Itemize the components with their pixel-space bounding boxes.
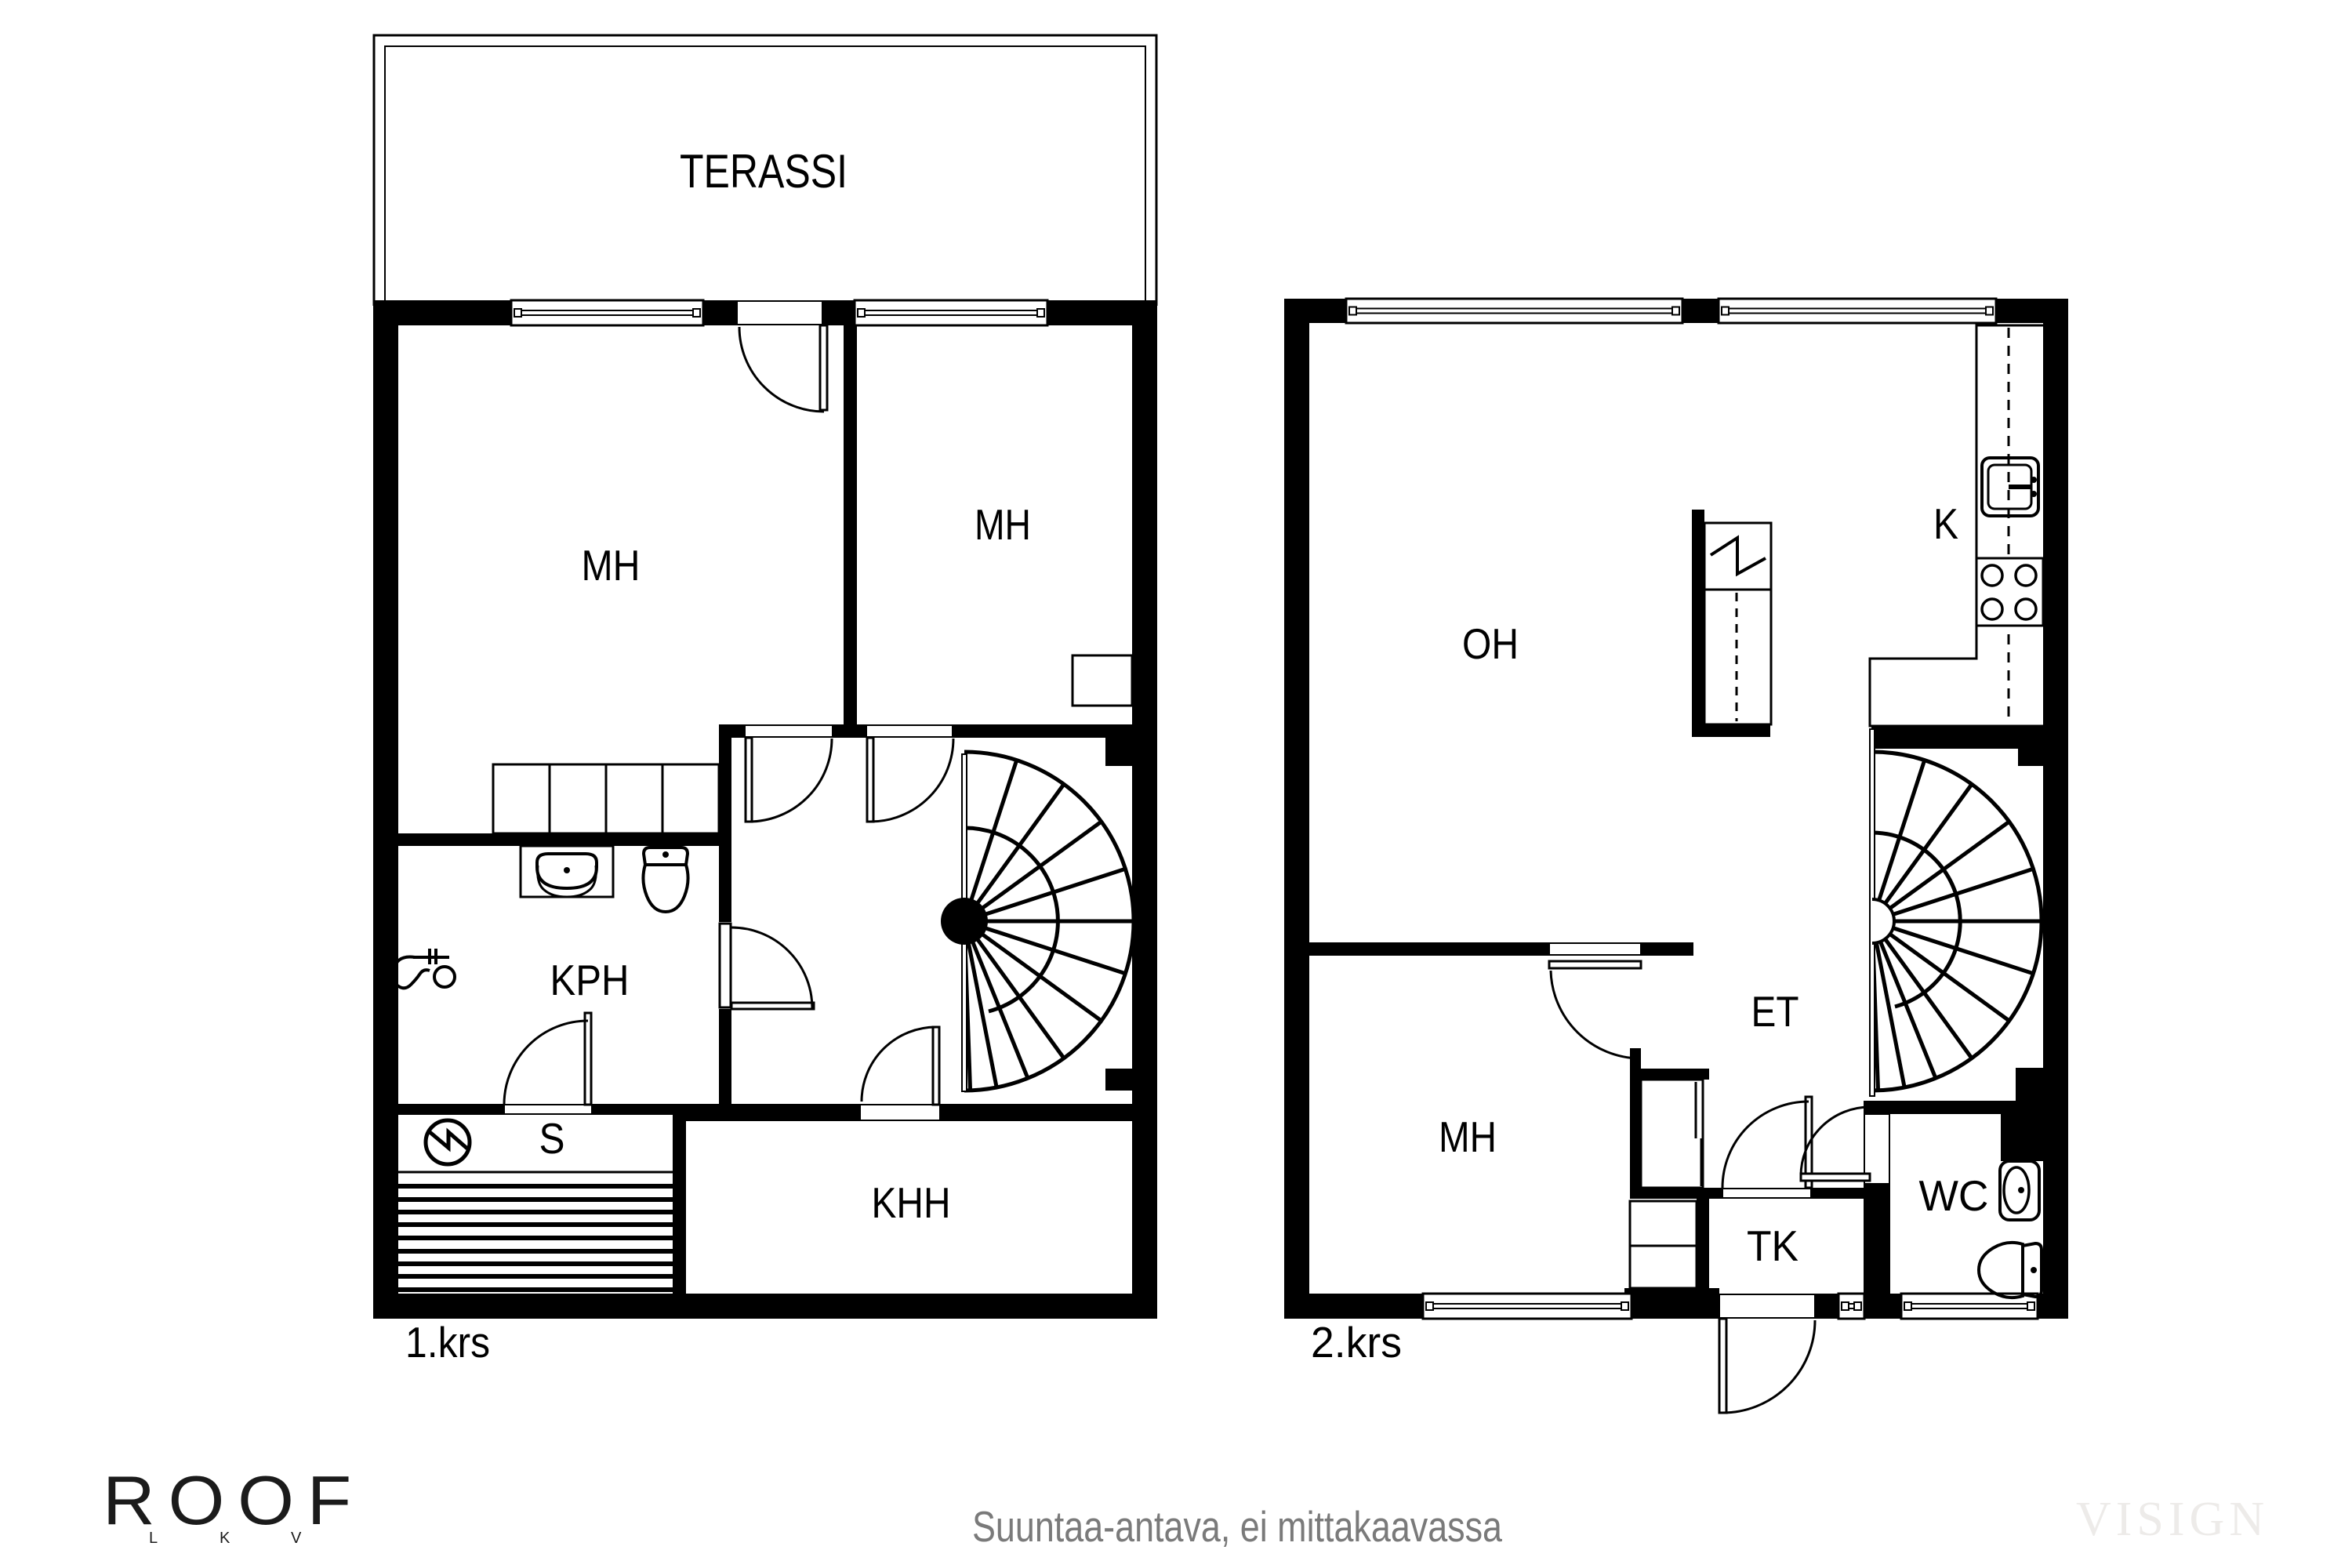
- svg-text:1.krs: 1.krs: [405, 1318, 490, 1367]
- svg-text:2.krs: 2.krs: [1311, 1318, 1402, 1367]
- svg-text:S: S: [539, 1114, 565, 1163]
- svg-text:MH: MH: [1439, 1112, 1497, 1161]
- svg-text:MH: MH: [975, 500, 1031, 549]
- svg-text:L: L: [149, 1530, 158, 1547]
- svg-text:KHH: KHH: [872, 1178, 951, 1227]
- svg-text:V: V: [291, 1530, 302, 1547]
- svg-text:TK: TK: [1747, 1221, 1798, 1270]
- svg-text:Suuntaa-antava, ei mittakaavas: Suuntaa-antava, ei mittakaavassa: [972, 1502, 1502, 1551]
- svg-text:ROOF: ROOF: [103, 1461, 365, 1539]
- svg-text:WC: WC: [1919, 1171, 1989, 1220]
- svg-text:KPH: KPH: [550, 956, 630, 1004]
- svg-text:K: K: [220, 1530, 230, 1547]
- svg-text:OH: OH: [1462, 619, 1519, 668]
- svg-text:VISIGN: VISIGN: [2076, 1493, 2269, 1546]
- svg-text:K: K: [1933, 499, 1958, 548]
- svg-text:MH: MH: [582, 541, 641, 590]
- svg-text:TERASSI: TERASSI: [680, 145, 848, 198]
- svg-text:ET: ET: [1751, 987, 1799, 1036]
